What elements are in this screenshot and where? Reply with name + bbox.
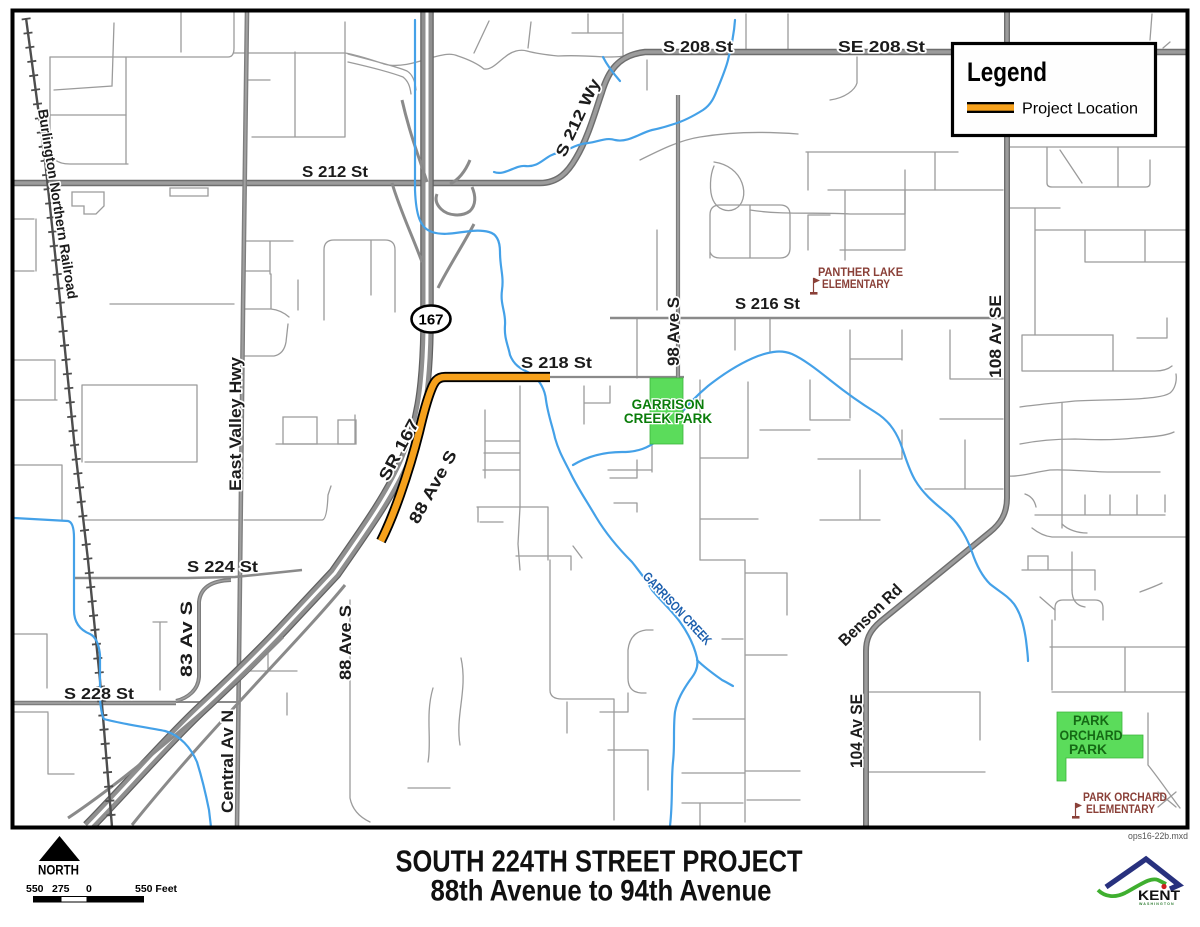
svg-text:KENT: KENT [1138,888,1181,903]
svg-text:Central Av N: Central Av N [218,710,237,813]
svg-text:GARRISON: GARRISON [632,397,705,412]
svg-text:PARK ORCHARD: PARK ORCHARD [1083,792,1167,804]
svg-text:S 224 St: S 224 St [187,559,258,576]
svg-text:88 Ave S: 88 Ave S [337,605,355,680]
svg-text:NORTH: NORTH [38,863,79,878]
svg-text:CREEK PARK: CREEK PARK [624,411,713,426]
svg-text:ops16-22b.mxd: ops16-22b.mxd [1128,831,1188,842]
svg-text:ORCHARD: ORCHARD [1060,728,1123,743]
svg-text:0: 0 [86,883,92,895]
svg-text:S 218 St: S 218 St [521,355,592,372]
svg-text:Legend: Legend [967,57,1047,87]
svg-text:PANTHER LAKE: PANTHER LAKE [818,267,903,279]
svg-text:167: 167 [418,312,443,329]
svg-text:275: 275 [52,883,70,895]
svg-text:104 Av SE: 104 Av SE [848,694,866,768]
svg-text:Project Location: Project Location [1022,101,1138,118]
svg-text:S 228 St: S 228 St [64,686,134,703]
svg-text:S 216 St: S 216 St [735,296,800,313]
svg-text:PARK: PARK [1069,742,1107,757]
svg-text:S 208 St: S 208 St [663,39,733,56]
svg-text:98 Ave S: 98 Ave S [665,297,683,366]
svg-text:ELEMENTARY: ELEMENTARY [1086,804,1155,816]
svg-text:SOUTH 224TH STREET PROJECT: SOUTH 224TH STREET PROJECT [396,845,803,879]
svg-text:ELEMENTARY: ELEMENTARY [822,279,890,291]
svg-text:83 Av S: 83 Av S [178,601,196,677]
svg-text:SE 208 St: SE 208 St [838,39,925,56]
svg-text:S 212 St: S 212 St [302,164,368,181]
svg-text:88th Avenue to 94th Avenue: 88th Avenue to 94th Avenue [431,875,772,908]
svg-text:PARK: PARK [1073,713,1109,728]
svg-text:WASHINGTON: WASHINGTON [1139,902,1175,906]
svg-text:550: 550 [26,883,44,895]
svg-text:550 Feet: 550 Feet [135,883,178,895]
svg-text:East Valley Hwy: East Valley Hwy [226,356,245,491]
svg-text:108 Av SE: 108 Av SE [987,295,1005,378]
